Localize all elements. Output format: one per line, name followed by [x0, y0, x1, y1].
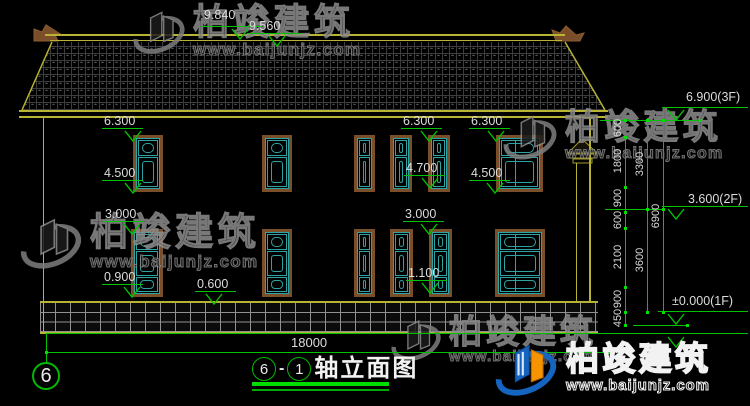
dimension-tick	[624, 286, 627, 289]
elevation-marker-triangle-icon	[230, 27, 250, 45]
elevation-marker-triangle-icon	[122, 285, 142, 303]
dimension-tick	[662, 311, 665, 314]
elevation-marker-triangle-icon	[419, 129, 439, 147]
dimension-tick	[624, 311, 627, 314]
dimension-line	[46, 333, 748, 334]
grid-bubble-number: 6	[40, 365, 51, 388]
drawing-title: 6 - 1 轴立面图	[252, 357, 418, 381]
elevation-marker-label: 4.500	[104, 166, 135, 180]
watermark-logo-icon	[501, 108, 559, 166]
watermark: 柏竣建筑 www.baijunjz.com	[18, 210, 260, 276]
elevation-marker-label: 6.900(3F)	[686, 90, 740, 104]
elevation-marker-triangle-icon	[420, 281, 440, 299]
roof-left-slope	[22, 42, 52, 110]
dimension-tick	[646, 208, 649, 211]
title-axis-separator: -	[279, 360, 284, 378]
title-axis-end-bubble: 1	[287, 357, 311, 381]
dimension-tick	[662, 208, 665, 211]
dimension-tick	[646, 119, 649, 122]
elevation-marker-label: 1.100	[408, 266, 439, 280]
dimension-tick	[624, 324, 627, 327]
chain-dimension-label: 600	[612, 211, 624, 229]
elevation-marker-label: 4.500	[471, 166, 502, 180]
dimension-tick	[624, 119, 627, 122]
roof-right-slope	[565, 42, 605, 110]
cad-elevation-drawing: 9.8409.5606.3004.5006.3006.3004.7004.500…	[0, 0, 750, 406]
elevation-marker-triangle-icon	[123, 129, 143, 147]
dimension-tick	[662, 119, 665, 122]
dimension-tick	[624, 211, 627, 214]
brand-logo-icon	[494, 337, 558, 401]
elevation-marker-triangle-icon	[204, 292, 224, 310]
dimension-line	[46, 333, 47, 363]
elevation-marker-triangle-icon	[666, 312, 686, 330]
brand-logo-url: www.baijunjz.com	[566, 375, 711, 396]
ridge-finial-left-icon	[34, 25, 62, 41]
building-outline-line	[576, 163, 577, 302]
grid-bubble: 6	[32, 362, 60, 390]
chain-dimension-label: 450	[612, 309, 624, 327]
elevation-marker-label: 9.840	[204, 8, 235, 22]
dimension-tick	[699, 119, 702, 122]
chain-dimension-label: 6900	[650, 204, 662, 228]
title-text: 轴立面图	[314, 357, 418, 381]
chain-dimension-label: 3600	[634, 248, 646, 272]
dimension-tick	[624, 186, 627, 189]
elevation-marker-label: 9.560	[249, 19, 280, 33]
watermark-logo-icon	[18, 210, 84, 276]
elevation-marker-label: 3.600(2F)	[688, 192, 742, 206]
dimension-tick	[686, 324, 689, 327]
elevation-marker-triangle-icon	[267, 34, 287, 52]
brand-logo-name: 柏竣建筑	[566, 342, 711, 375]
brand-logo: 柏竣建筑 www.baijunjz.com	[494, 337, 711, 401]
dimension-tick	[624, 227, 627, 230]
chain-dimension-label: 1800	[612, 149, 624, 173]
title-underline-thick	[252, 382, 389, 386]
title-axis-start-bubble: 6	[252, 357, 276, 381]
elevation-marker-label: 6.300	[471, 114, 502, 128]
elevation-marker-label: 0.900	[104, 270, 135, 284]
dimension-tick	[624, 136, 627, 139]
watermark-url: www.baijunjz.com	[90, 252, 260, 272]
elevation-marker-triangle-icon	[666, 108, 686, 126]
elevation-marker-triangle-icon	[485, 181, 505, 199]
elevation-marker-label: 3.000	[105, 207, 136, 221]
dimension-tick	[646, 311, 649, 314]
chain-dimension-label: 2100	[612, 245, 624, 269]
title-underline-thin	[252, 389, 389, 391]
elevation-marker-triangle-icon	[123, 181, 143, 199]
elevation-marker-triangle-icon	[122, 222, 142, 240]
dimension-line	[647, 118, 648, 314]
elevation-marker-label: 3.000	[405, 207, 436, 221]
elevation-marker-label: 6.300	[104, 114, 135, 128]
dimension-tick	[45, 351, 48, 354]
elevation-marker-label: 0.600	[197, 277, 228, 291]
chain-dimension-label: 3300	[634, 152, 646, 176]
elevation-marker-label: ±0.000(1F)	[672, 294, 733, 308]
watermark-logo-icon	[131, 4, 187, 60]
elevation-marker-triangle-icon	[666, 207, 686, 225]
chain-dimension-label: 900	[612, 189, 624, 207]
dimension-line	[625, 118, 626, 327]
dimension-line	[663, 118, 664, 314]
chain-dimension-label: 900	[612, 290, 624, 308]
elevation-marker-label: 6.300	[403, 114, 434, 128]
watermark-brand: 柏竣建筑	[565, 110, 724, 145]
elevation-marker-triangle-icon	[486, 129, 506, 147]
elevation-marker-label: 4.700	[406, 161, 437, 175]
elevation-marker-triangle-icon	[420, 176, 440, 194]
overall-width-dimension: 18000	[291, 336, 327, 350]
elevation-marker-triangle-icon	[419, 222, 439, 240]
chain-dimension-label: 600	[612, 119, 624, 137]
